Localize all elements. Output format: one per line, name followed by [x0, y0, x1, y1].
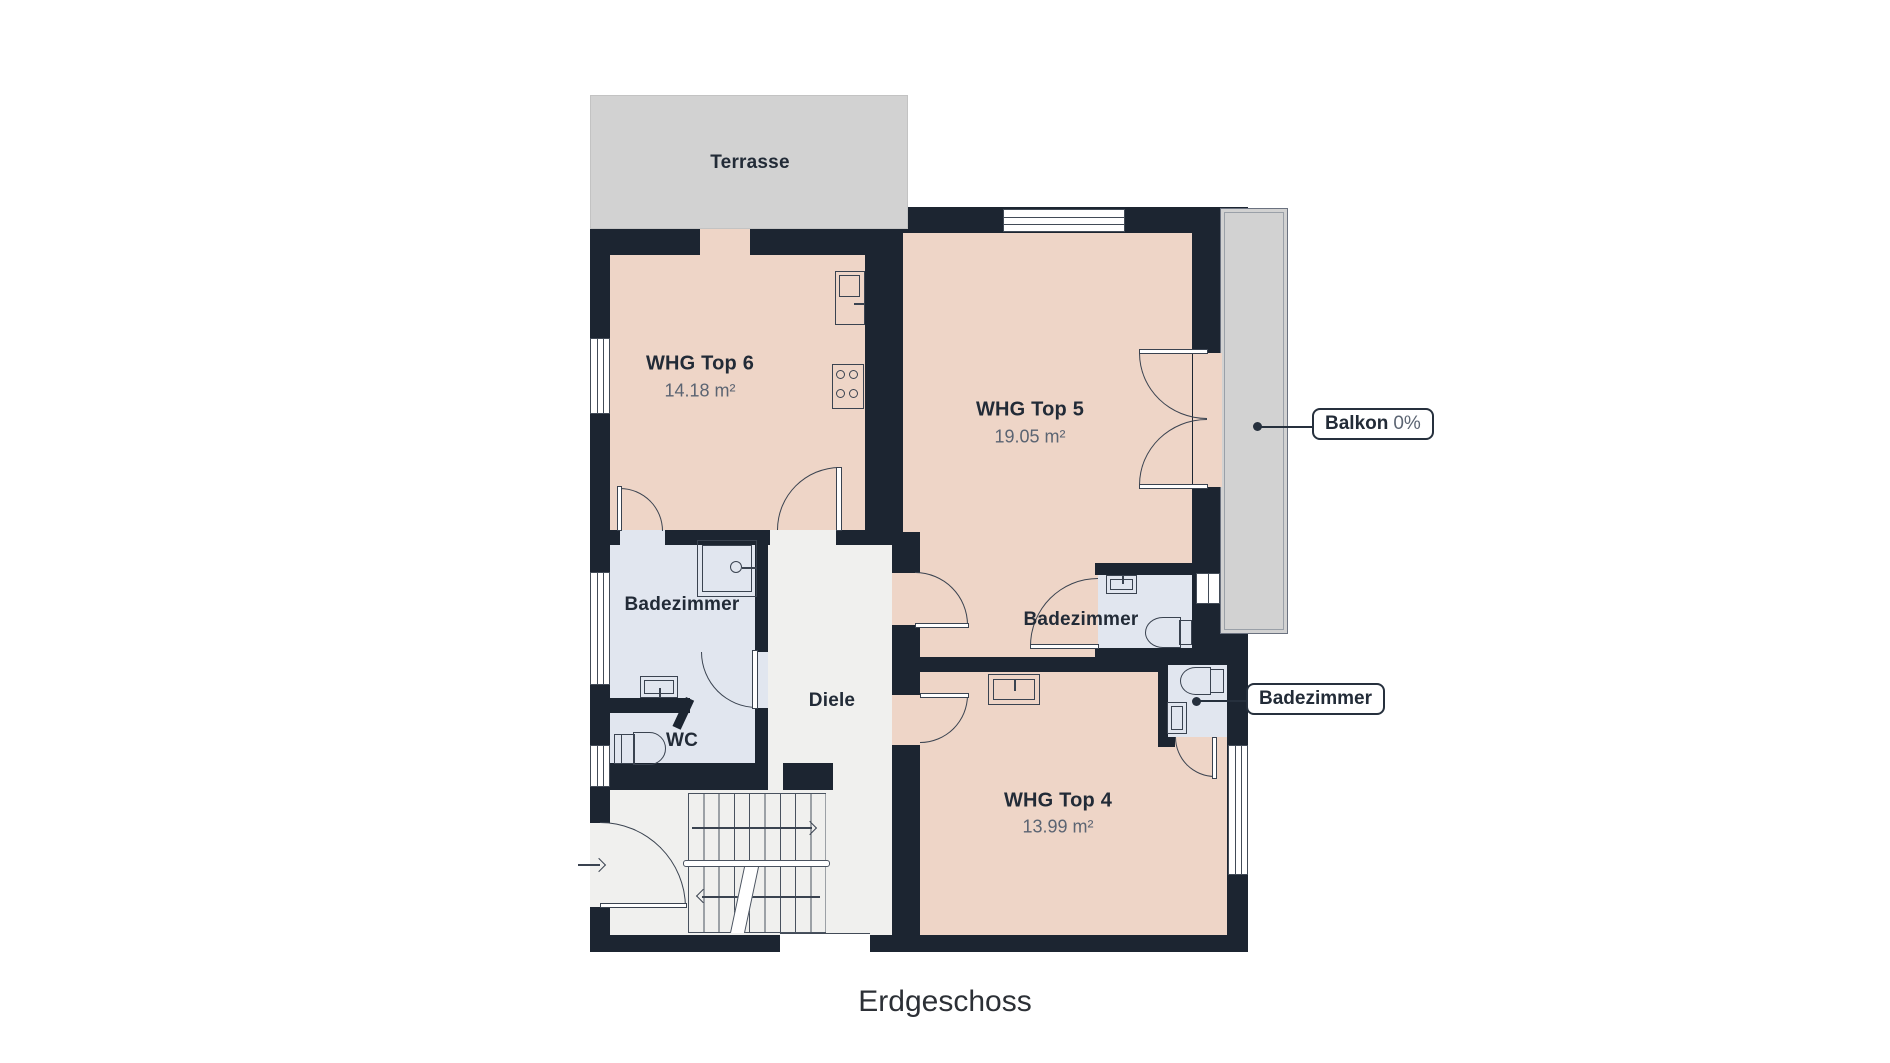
stove	[832, 364, 864, 409]
door-opening	[620, 530, 665, 545]
door-opening	[770, 530, 836, 545]
badezimmer-callout-label: Badezimmer	[1259, 688, 1372, 710]
room-label-badezimmer-left: Badezimmer	[625, 594, 740, 616]
toilet-bowl	[1180, 667, 1211, 695]
window	[1003, 209, 1125, 232]
wall	[1158, 737, 1175, 747]
room-label-badezimmer-mid: Badezimmer	[1024, 609, 1139, 631]
wall	[783, 763, 833, 790]
room-area-whg6: 14.18 m²	[664, 381, 735, 402]
door-leaf	[617, 486, 622, 531]
stairs-up-arrow	[692, 827, 812, 829]
floor-caption: Erdgeschoss	[858, 985, 1031, 1019]
wall	[590, 763, 755, 790]
room-label-wc: WC	[666, 730, 698, 752]
bottom-wall-opening	[780, 933, 870, 952]
room-area-whg4: 13.99 m²	[1022, 817, 1093, 838]
balcony-area	[1220, 208, 1288, 634]
door-leaf	[920, 693, 969, 698]
toilet	[614, 734, 635, 764]
door-leaf	[915, 623, 969, 628]
door-leaf	[600, 903, 687, 908]
callout-leader	[1261, 426, 1313, 428]
sink	[1106, 575, 1137, 594]
window	[590, 572, 610, 685]
stairs-lower-flight	[688, 867, 826, 933]
toilet-bowl	[1145, 617, 1181, 648]
door-leaf	[1212, 737, 1217, 779]
door-leaf	[752, 650, 758, 709]
callout-leader	[1200, 700, 1247, 702]
room-label-whg5: WHG Top 5	[976, 399, 1084, 422]
window	[1228, 745, 1248, 875]
balkon-callout-label: Balkon	[1325, 413, 1388, 435]
room-area-whg5: 19.05 m²	[994, 427, 1065, 448]
door-opening	[892, 695, 922, 745]
window	[590, 338, 610, 414]
balkon-callout-value: 0%	[1393, 413, 1420, 435]
terrace-label: Terrasse	[710, 152, 789, 174]
sink	[640, 676, 678, 698]
badezimmer-callout[interactable]: Badezimmer	[1246, 683, 1385, 715]
balkon-callout[interactable]: Balkon 0%	[1312, 408, 1434, 440]
wall	[1095, 563, 1195, 575]
window	[590, 745, 610, 787]
window	[1196, 573, 1220, 604]
balcony-railing	[1224, 212, 1284, 630]
stairs-handrail	[683, 860, 830, 867]
room-label-diele: Diele	[809, 690, 855, 712]
door-leaf	[1139, 349, 1208, 354]
sink	[1167, 702, 1187, 734]
room-label-whg6: WHG Top 6	[646, 353, 754, 376]
floorplan-canvas: Terrasse WHG Top 6 14.18 m² WHG Top 5 19…	[0, 0, 1890, 1063]
toilet-bowl	[633, 732, 666, 765]
toilet-tank	[1179, 620, 1192, 645]
toilet-tank	[1210, 669, 1224, 693]
kitchen-sink	[835, 271, 865, 325]
stairs-down-arrow	[702, 896, 820, 898]
sink	[988, 674, 1040, 705]
terrace-door-opening	[700, 229, 750, 257]
door-leaf	[836, 467, 842, 531]
shower	[697, 540, 757, 597]
room-label-whg4: WHG Top 4	[1004, 790, 1112, 813]
door-leaf	[1139, 484, 1208, 489]
door-leaf	[1030, 644, 1099, 649]
